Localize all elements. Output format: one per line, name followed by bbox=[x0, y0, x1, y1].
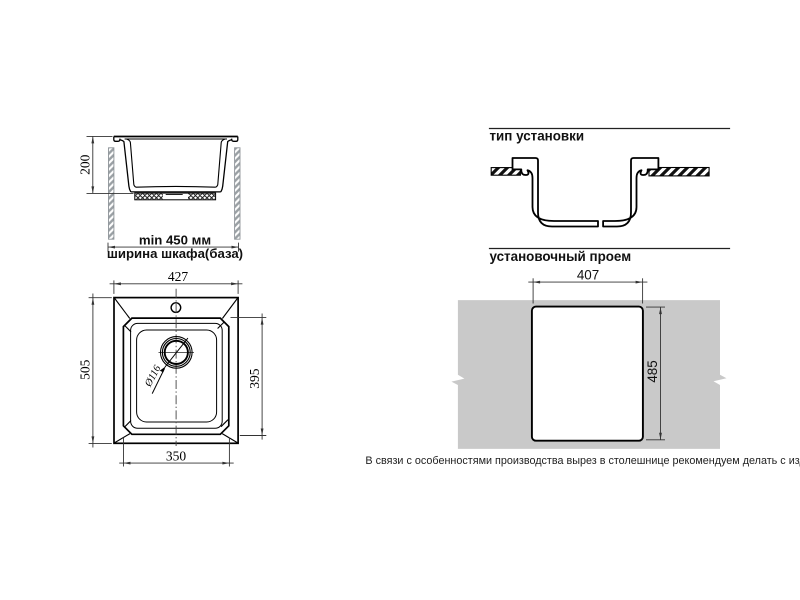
svg-text:установочный проем: установочный проем bbox=[490, 249, 632, 264]
svg-text:В связи с особенностями произв: В связи с особенностями производства выр… bbox=[365, 455, 800, 467]
svg-text:407: 407 bbox=[577, 268, 599, 283]
svg-text:ширина шкафа(база): ширина шкафа(база) bbox=[107, 246, 243, 261]
svg-text:395: 395 bbox=[247, 368, 262, 389]
svg-text:505: 505 bbox=[78, 359, 93, 380]
svg-text:427: 427 bbox=[168, 269, 189, 284]
svg-text:200: 200 bbox=[78, 154, 93, 175]
svg-text:350: 350 bbox=[166, 448, 187, 463]
svg-text:485: 485 bbox=[645, 360, 660, 382]
svg-text:тип установки: тип установки bbox=[490, 129, 585, 144]
